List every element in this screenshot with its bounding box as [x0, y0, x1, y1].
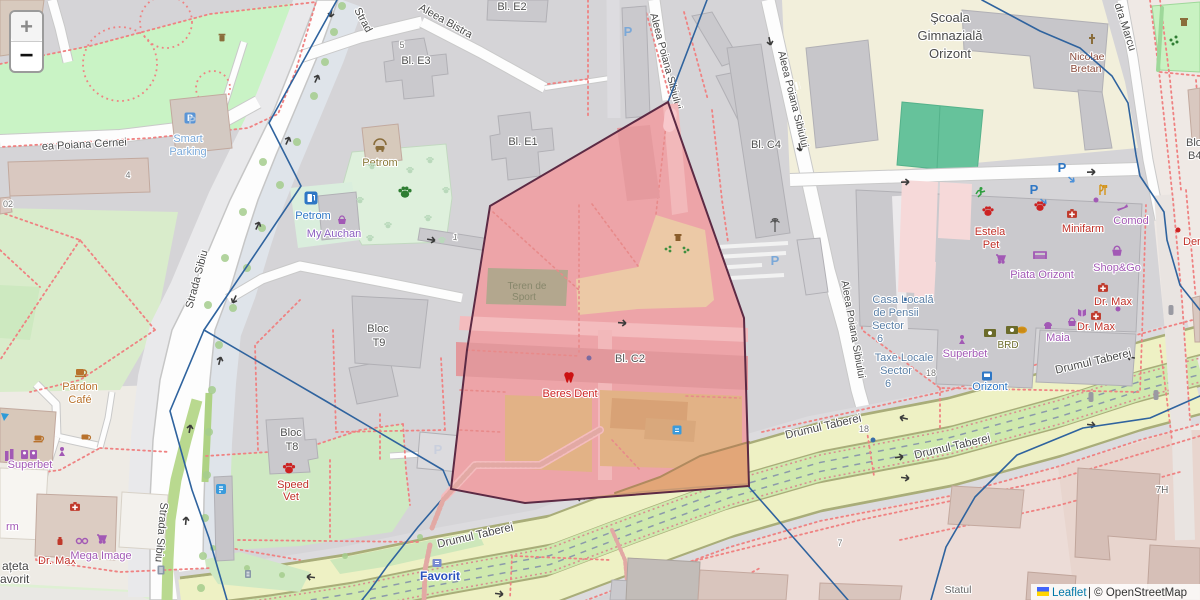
svg-text:Teren de: Teren de: [508, 281, 547, 292]
svg-text:B4: B4: [1188, 150, 1200, 162]
svg-text:P: P: [1030, 182, 1039, 197]
svg-text:P: P: [188, 115, 195, 127]
svg-text:Café: Café: [68, 394, 91, 406]
svg-text:Sector: Sector: [880, 365, 912, 377]
svg-text:02: 02: [3, 199, 13, 209]
svg-text:18: 18: [926, 368, 936, 378]
svg-text:Orizont: Orizont: [929, 46, 971, 61]
svg-text:Estela: Estela: [975, 226, 1006, 238]
svg-text:P: P: [771, 253, 780, 268]
svg-text:Favorit: Favorit: [420, 569, 460, 583]
svg-text:Maia: Maia: [1046, 332, 1071, 344]
svg-text:avorit: avorit: [0, 572, 30, 586]
svg-text:Minifarm: Minifarm: [1062, 223, 1104, 235]
svg-text:Bretan: Bretan: [1071, 63, 1102, 75]
svg-text:Statul: Statul: [945, 584, 972, 596]
svg-text:Beres Dent: Beres Dent: [542, 388, 597, 400]
svg-text:T8: T8: [286, 441, 299, 453]
svg-text:P: P: [1058, 160, 1067, 175]
svg-text:P: P: [624, 24, 633, 39]
svg-text:7H: 7H: [1156, 485, 1169, 496]
svg-text:5: 5: [399, 40, 404, 50]
svg-text:Sport: Sport: [512, 292, 536, 303]
svg-text:ațeta: ațeta: [2, 559, 29, 573]
svg-text:Speed: Speed: [277, 479, 309, 491]
svg-text:rm: rm: [6, 521, 19, 533]
svg-text:Bloc: Bloc: [367, 323, 389, 335]
svg-text:6: 6: [885, 378, 891, 390]
svg-text:| © OpenStreetMap: | © OpenStreetMap: [1088, 587, 1187, 599]
svg-text:Casa Locală: Casa Locală: [872, 294, 934, 306]
svg-text:Smart: Smart: [173, 133, 202, 145]
svg-text:Petrom: Petrom: [295, 210, 330, 222]
svg-text:Bl. C2: Bl. C2: [615, 353, 645, 365]
svg-text:BRD: BRD: [997, 340, 1018, 351]
svg-text:Pardon: Pardon: [62, 381, 97, 393]
svg-text:Nicolae: Nicolae: [1069, 51, 1104, 63]
svg-text:6: 6: [877, 333, 883, 345]
svg-text:P: P: [434, 442, 443, 457]
svg-text:Pet: Pet: [983, 239, 1000, 251]
svg-text:Vet: Vet: [283, 491, 299, 503]
svg-text:Şcoala: Şcoala: [930, 10, 971, 25]
svg-text:7: 7: [837, 538, 842, 548]
svg-text:Dr. Max: Dr. Max: [1094, 296, 1132, 308]
svg-text:Comod: Comod: [1113, 215, 1148, 227]
svg-text:My Auchan: My Auchan: [307, 228, 361, 240]
svg-text:Sector: Sector: [872, 320, 904, 332]
svg-text:Mega Image: Mega Image: [70, 550, 131, 562]
svg-text:Shop&Go: Shop&Go: [1093, 262, 1141, 274]
svg-text:Gimnazială: Gimnazială: [917, 28, 983, 43]
svg-text:Bl. E3: Bl. E3: [401, 55, 430, 67]
svg-text:Leaflet: Leaflet: [1052, 587, 1087, 599]
svg-text:4: 4: [125, 170, 130, 180]
svg-text:Superbet: Superbet: [943, 348, 988, 360]
svg-text:de Pensii: de Pensii: [873, 307, 918, 319]
svg-text:Taxe Locale: Taxe Locale: [875, 352, 934, 364]
svg-text:Dr. Max: Dr. Max: [1077, 321, 1115, 333]
svg-text:Bl. C4: Bl. C4: [751, 139, 781, 151]
svg-text:Piata Orizont: Piata Orizont: [1010, 269, 1074, 281]
svg-text:18: 18: [859, 424, 869, 434]
svg-text:−: −: [19, 42, 33, 69]
svg-text:T9: T9: [373, 337, 386, 349]
svg-text:Bloc: Bloc: [280, 427, 302, 439]
svg-text:Orizont: Orizont: [972, 381, 1007, 393]
svg-text:+: +: [20, 14, 33, 39]
svg-text:Bl. E1: Bl. E1: [508, 136, 537, 148]
svg-text:Bl. E2: Bl. E2: [497, 1, 526, 13]
svg-text:Petrom: Petrom: [362, 157, 397, 169]
svg-text:Superbet: Superbet: [8, 459, 53, 471]
svg-text:Dentar: Dentar: [1183, 236, 1200, 248]
svg-text:Blo: Blo: [1186, 137, 1200, 149]
svg-text:Parking: Parking: [169, 146, 206, 158]
